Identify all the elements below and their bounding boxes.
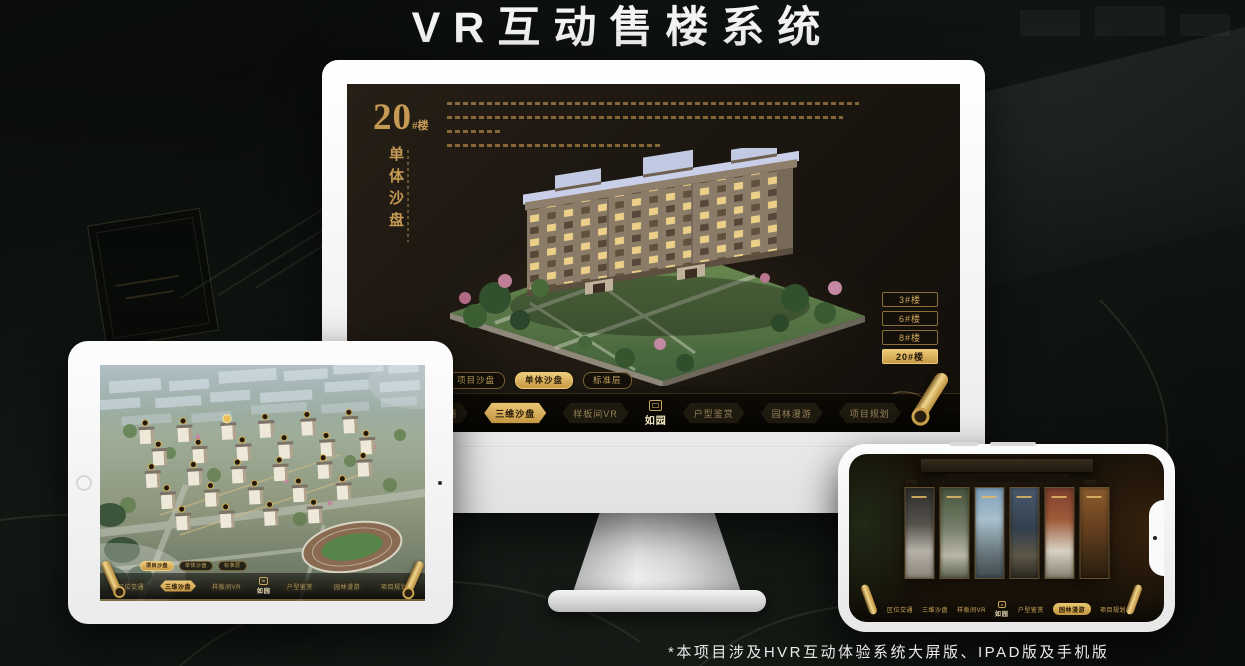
menu-panel[interactable]: [904, 487, 934, 579]
nav-item[interactable]: 园林漫游: [329, 580, 365, 593]
logo-text: 如园: [995, 609, 1009, 618]
monitor-base: [548, 590, 766, 612]
page-title: VR互动售楼系统: [0, 0, 1245, 56]
power-button: [990, 442, 1036, 446]
tablet-screen: 项目沙盘 单体沙盘 标准层 区位交通 三维沙盘 样板间VR 如园 户型鉴赏 园林…: [100, 365, 425, 601]
camera-icon: [438, 481, 442, 485]
tablet-device: 项目沙盘 单体沙盘 标准层 区位交通 三维沙盘 样板间VR 如园 户型鉴赏 园林…: [68, 341, 453, 624]
nav-item[interactable]: 户型鉴赏: [1018, 605, 1044, 614]
notch: [1149, 500, 1164, 576]
menu-panel[interactable]: [1009, 487, 1039, 579]
floor-button[interactable]: 3#楼: [882, 292, 938, 307]
ruyuan-logo[interactable]: 如园: [257, 577, 271, 595]
nav-item[interactable]: 户型鉴赏: [683, 402, 745, 425]
nav-item-active[interactable]: 三维沙盘: [484, 402, 546, 425]
gate-beam: [946, 474, 1068, 482]
nav-item[interactable]: 样板间VR: [562, 402, 629, 425]
seal-icon: [259, 577, 268, 585]
monitor-sub-tabs: 项目沙盘 单体沙盘 标准层: [447, 372, 632, 389]
logo-text: 如园: [257, 586, 271, 595]
floor-button[interactable]: 6#楼: [882, 311, 938, 326]
building-vertical-subtitle-deco: [407, 150, 409, 242]
building-number-title: 20#楼: [373, 96, 429, 139]
nav-item[interactable]: 园林漫游: [761, 402, 823, 425]
menu-panel[interactable]: [1079, 487, 1109, 579]
menu-panel[interactable]: [939, 487, 969, 579]
building-number: 20: [373, 97, 412, 138]
background-line: [180, 207, 325, 299]
ruyuan-logo[interactable]: 如园: [645, 400, 667, 427]
tablet-nav-bar: 区位交通 三维沙盘 样板间VR 如园 户型鉴赏 园林漫游 项目规划: [100, 573, 425, 601]
nav-item-active[interactable]: 三维沙盘: [160, 580, 196, 593]
floor-button[interactable]: 8#楼: [882, 330, 938, 345]
gate-lintel: [921, 459, 1093, 472]
ruyuan-logo[interactable]: 如园: [995, 601, 1009, 618]
building-number-suffix: #楼: [412, 120, 429, 132]
menu-panels: [904, 487, 1109, 579]
volume-button: [950, 442, 978, 446]
floor-button-group: 3#楼 6#楼 8#楼 20#楼: [882, 292, 938, 368]
nav-item[interactable]: 项目规划: [839, 402, 901, 425]
sub-tab-active[interactable]: 单体沙盘: [515, 372, 573, 389]
logo-text: 如园: [645, 412, 667, 427]
floor-button-active[interactable]: 20#楼: [882, 349, 938, 364]
sub-tab-active[interactable]: 项目沙盘: [140, 561, 174, 571]
home-button[interactable]: [76, 475, 92, 491]
sub-tab[interactable]: 项目沙盘: [447, 372, 505, 389]
menu-panel[interactable]: [1044, 487, 1074, 579]
building-model-image: [435, 148, 875, 386]
sub-tab[interactable]: 单体沙盘: [179, 561, 213, 571]
background-plaque: [87, 208, 219, 348]
phone-screen: 区位交通 三维沙盘 样板间VR 如园 户型鉴赏 园林漫游 项目规划: [849, 454, 1164, 622]
monitor-stand: [572, 509, 742, 595]
nav-item[interactable]: 项目规划: [1100, 605, 1126, 614]
seal-icon: [649, 400, 662, 411]
nav-item[interactable]: 三维沙盘: [922, 605, 948, 614]
building-vertical-title: 单体沙盘: [385, 146, 406, 234]
nav-item[interactable]: 样板间VR: [957, 605, 986, 614]
tablet-sub-tabs: 项目沙盘 单体沙盘 标准层: [140, 561, 247, 571]
sub-tab[interactable]: 标准层: [218, 561, 247, 571]
nav-item[interactable]: 户型鉴赏: [282, 580, 318, 593]
stage: VR互动售楼系统 20#楼 单体沙盘: [0, 0, 1245, 666]
nav-item[interactable]: 区位交通: [887, 605, 913, 614]
phone-nav-bar: 区位交通 三维沙盘 样板间VR 如园 户型鉴赏 园林漫游 项目规划: [849, 596, 1164, 622]
footnote: *本项目涉及HVR互动体验系统大屏版、IPAD版及手机版: [668, 641, 1109, 662]
nav-item-active[interactable]: 园林漫游: [1053, 603, 1091, 615]
phone-device: 区位交通 三维沙盘 样板间VR 如园 户型鉴赏 园林漫游 项目规划: [838, 444, 1175, 632]
sub-tab[interactable]: 标准层: [583, 372, 632, 389]
menu-panel[interactable]: [974, 487, 1004, 579]
nav-item[interactable]: 样板间VR: [207, 580, 246, 593]
seal-icon: [998, 601, 1006, 608]
